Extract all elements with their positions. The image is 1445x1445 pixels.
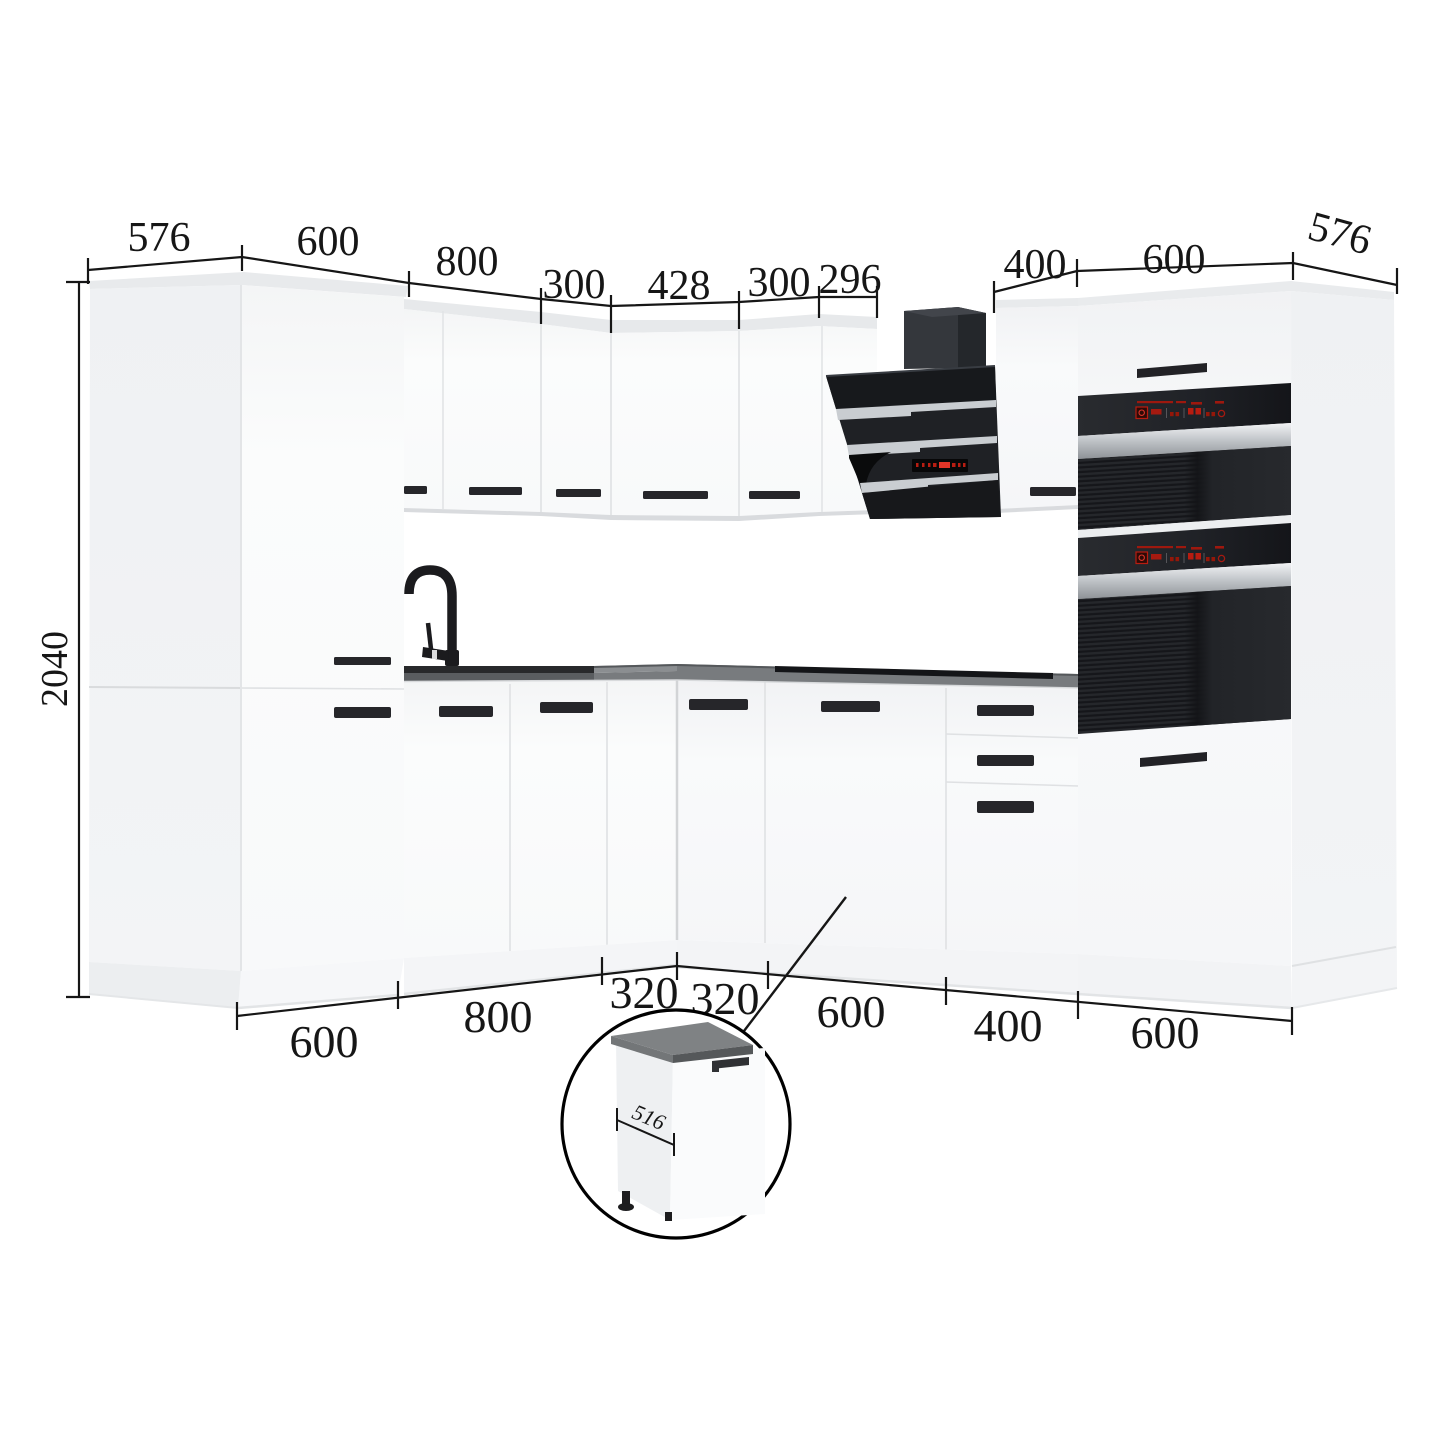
svg-text:300: 300 (543, 262, 606, 308)
svg-text:296: 296 (819, 257, 882, 303)
svg-text:400: 400 (974, 1000, 1043, 1051)
svg-text:2040: 2040 (34, 631, 76, 707)
svg-text:400: 400 (1004, 242, 1067, 288)
svg-text:600: 600 (297, 219, 360, 265)
svg-text:600: 600 (817, 986, 886, 1037)
svg-text:428: 428 (648, 263, 711, 309)
svg-text:576: 576 (128, 215, 191, 261)
svg-text:600: 600 (1143, 237, 1206, 283)
svg-text:800: 800 (464, 991, 533, 1042)
svg-text:600: 600 (290, 1016, 359, 1067)
svg-text:600: 600 (1131, 1007, 1200, 1058)
svg-text:300: 300 (748, 260, 811, 306)
svg-text:800: 800 (436, 239, 499, 285)
